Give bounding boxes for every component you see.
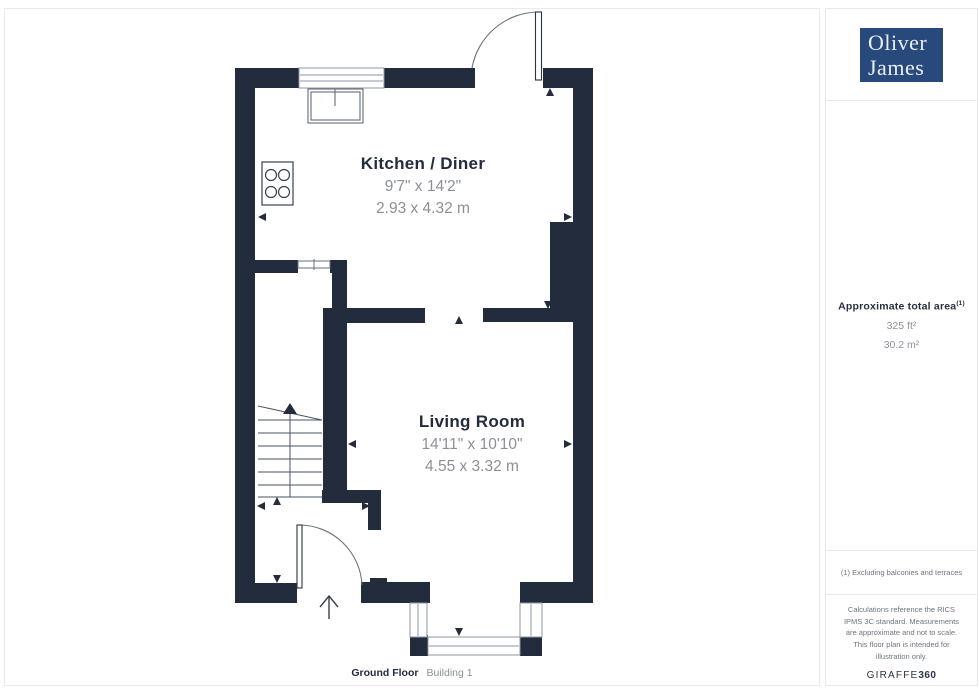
room-name: Living Room [419,410,525,434]
rear-door [472,12,542,80]
brand-name: GIRAFFE [867,670,919,681]
area-title: Approximate total area(1) [838,300,965,313]
sink-unit-icon [308,89,363,123]
brand-suffix: 360 [918,670,936,681]
logo-line-2: James [868,55,943,80]
area-metric: 30.2 m² [838,339,965,351]
front-door [297,525,362,588]
stairwell-internal-window [298,259,330,270]
entrance-arrow-icon [320,596,338,619]
disclaimer-text: Calculations reference the RICS IPMS 3C … [839,604,964,662]
room-dimensions-imperial: 14'11" x 10'10" [419,434,525,456]
info-sidebar: Oliver James Approximate total area(1) 3… [825,8,978,686]
logo-line-1: Oliver [868,30,943,55]
stairs-up-arrow-icon [283,403,297,414]
bay-bottom-window [428,637,520,655]
room-dimensions-metric: 2.93 x 4.32 m [361,198,485,220]
staircase [258,403,322,497]
bay-left-window [410,603,427,637]
area-footnote-marker: (1) [956,300,965,307]
kitchen-diner-label: Kitchen / Diner 9'7" x 14'2" 2.93 x 4.32… [361,152,485,220]
room-dimensions-imperial: 9'7" x 14'2" [361,176,485,198]
disclaimer-section: Calculations reference the RICS IPMS 3C … [826,595,977,685]
oliver-james-logo: Oliver James [860,28,943,82]
room-dimensions-metric: 4.55 x 3.32 m [419,456,525,478]
area-section: Approximate total area(1) 325 ft² 30.2 m… [826,101,977,551]
footnote-section: (1) Excluding balconies and terraces [826,551,977,595]
stove-icon [262,162,293,205]
footnote-text: (1) Excluding balconies and terraces [841,568,962,577]
room-name: Kitchen / Diner [361,152,485,176]
giraffe360-brand: GIRAFFE360 [839,668,964,684]
living-room-label: Living Room 14'11" x 10'10" 4.55 x 3.32 … [419,410,525,478]
bay-right-window [520,603,542,637]
logo-section: Oliver James [826,9,977,101]
area-imperial: 325 ft² [838,320,965,332]
interior-walls [255,222,573,583]
kitchen-window [299,68,384,88]
